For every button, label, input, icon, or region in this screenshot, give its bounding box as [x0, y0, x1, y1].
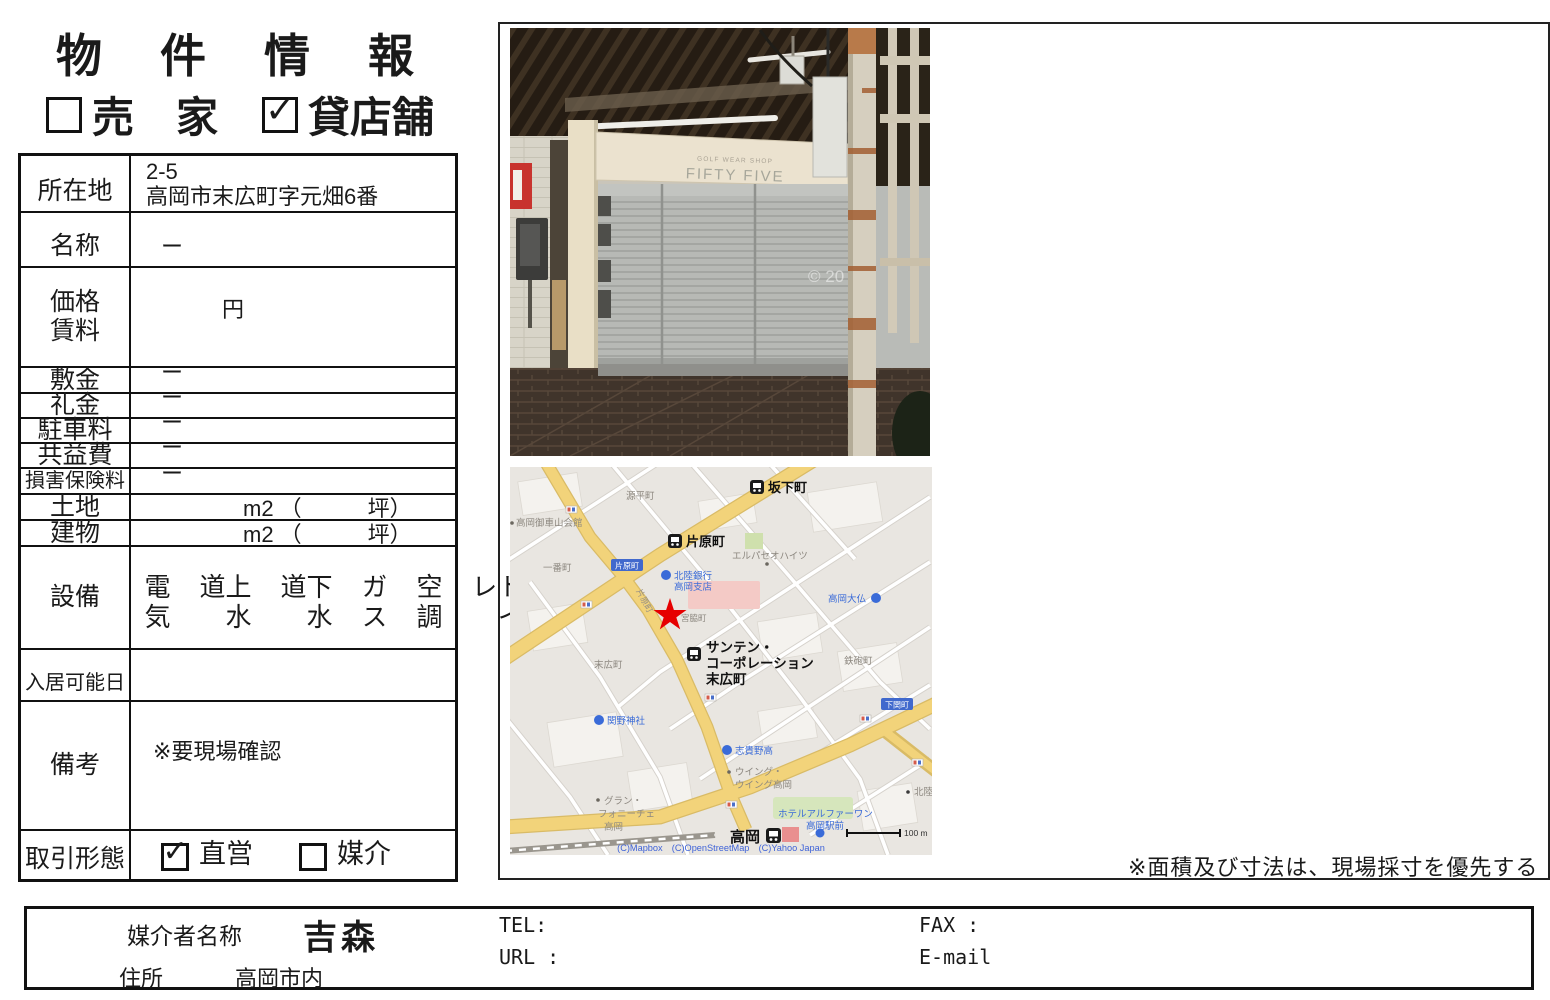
shutter-top-lip [598, 184, 848, 196]
label-santen-1: サンテン・ [706, 640, 774, 655]
table-row-facilities: 設備 電気 上水道 下水道 ガス 空調 トイレ [21, 545, 455, 648]
ladder-rail-2 [910, 28, 919, 343]
table-row-insurance: 損害保険料 ー [21, 467, 455, 493]
property-type-row: 売 家 ✓ 貸店舗 [46, 84, 434, 145]
label-sekino: 関野神社 [607, 715, 646, 727]
scale-label: 100 m [904, 828, 928, 838]
checkbox-rent[interactable]: ✓ [262, 97, 298, 133]
facility-item: ガス [360, 573, 386, 648]
media-panel: GOLF WEAR SHOP FIFTY FIVE [498, 22, 1550, 880]
table-row-keymoney: 礼金 ー [21, 392, 455, 417]
red-sign-panel [513, 170, 522, 200]
label-shikino: 志貴野高 [735, 745, 773, 757]
row-label: 土地 [21, 495, 131, 519]
price-label-1: 価格 [50, 288, 100, 316]
green-area-small [745, 533, 763, 549]
address-value: 高岡市内 [235, 961, 323, 993]
row-value: ー [131, 469, 455, 493]
bank-icon [661, 570, 671, 580]
location-line2: 高岡市末広町字元畑6番 [146, 184, 378, 209]
table-row-land: 土地 m2 （ 坪） [21, 493, 455, 519]
poi-dot-hokuriku [906, 790, 910, 794]
property-sheet: 物 件 情 報 売 家 ✓ 貸店舗 所在地 2-5 高岡市末広町字元畑6番 名称… [0, 0, 1550, 1000]
checkbox-sale[interactable] [46, 97, 82, 133]
label-hokuriku: 北陸 [914, 786, 932, 798]
label-gran-3: 高岡 [604, 821, 623, 833]
label-daibutsu: 高岡大仏 [828, 593, 867, 605]
label-hotel-1: ホテルアルファーワン [778, 809, 873, 820]
label-bank-2: 高岡支店 [674, 581, 712, 593]
takaoka-station-building [782, 827, 799, 842]
label-mikurumayama: 高岡御車山会館 [516, 517, 583, 529]
left-wall [510, 136, 568, 376]
row-value [131, 650, 455, 700]
row-label: 価格 賃料 [21, 268, 131, 366]
label-bank-1: 北陸銀行 [674, 570, 713, 582]
row-value: m2 （ 坪） [131, 521, 455, 545]
poi-dot-wing [727, 770, 731, 774]
utility-box-door [520, 224, 540, 266]
row-value: ー [131, 213, 455, 266]
agent-name-label: 媒介者名称 [127, 917, 242, 951]
label-santen-3: 末広町 [706, 671, 747, 687]
row-label: 敷金 [21, 368, 131, 392]
table-row-deposit: 敷金 ー [21, 366, 455, 392]
agent-footer: 媒介者名称 吉森 TEL: URL : FAX : E-mail 住所 高岡市内 [24, 906, 1534, 990]
crossbar-2 [880, 114, 930, 123]
facility-item: 下水道 [279, 573, 331, 648]
label-suehiromachi: 末広町 [594, 659, 623, 671]
label-wing-1: ウイング・ [735, 766, 783, 778]
label-wing-2: ウイング高岡 [735, 779, 792, 791]
poi-dot-hall [510, 521, 514, 525]
url-label: URL : [499, 945, 559, 969]
rusty-pole [848, 28, 876, 456]
checkbox-direct[interactable]: ✓ [161, 843, 189, 871]
checkbox-agency[interactable] [299, 843, 327, 871]
measurement-note: ※面積及び寸法は、現場採寸を優先する [1128, 850, 1538, 882]
map-attribution: (C)Mapbox (C)OpenStreetMap (C)Yahoo Japa… [617, 843, 825, 853]
row-value: 2-5 高岡市末広町字元畑6番 [131, 156, 455, 211]
label-sakashitamachi: 坂下町 [768, 480, 807, 495]
threshold [598, 364, 848, 376]
row-label: 設備 [21, 547, 131, 648]
label-miyawakicho: 宮脇町 [681, 613, 707, 623]
fax-label: FAX : [919, 913, 979, 937]
daibutsu-icon [871, 593, 881, 603]
label-ichibancho: 一番町 [543, 562, 572, 574]
ladder-rail-1 [888, 28, 897, 333]
shrine-icon [594, 715, 604, 725]
location-line1: 2-5 [146, 159, 178, 184]
rent-label: 貸店舗 [308, 84, 434, 145]
sale-label: 売 家 [92, 84, 218, 145]
storefront-photo: GOLF WEAR SHOP FIFTY FIVE [510, 28, 930, 456]
table-row-movein: 入居可能日 [21, 648, 455, 700]
label-genpeimachi: 源平町 [626, 491, 655, 502]
label-kataharamachi: 片原町 [686, 534, 725, 549]
tel-label: TEL: [499, 913, 547, 937]
facility-item: 上水道 [198, 573, 250, 648]
electrical-box [813, 77, 847, 177]
crossbar-3 [880, 258, 930, 266]
facilities-list: 電気 上水道 下水道 ガス 空調 トイレ [131, 547, 522, 648]
row-label: 共益費 [21, 444, 131, 467]
label-elpaseo: エルパセオハイツ [732, 551, 808, 562]
table-row-location: 所在地 2-5 高岡市末広町字元畑6番 [21, 156, 455, 211]
table-row-price: 価格 賃料 円 [21, 266, 455, 366]
photo-watermark: © 20 [808, 267, 844, 286]
row-label: 損害保険料 [21, 469, 131, 493]
label-santen-2: コーポレーション [706, 655, 814, 671]
table-row-parking: 駐車料 ー [21, 417, 455, 442]
table-row-commonfee: 共益費 ー [21, 442, 455, 467]
label-teppomachi: 鉄砲町 [844, 655, 873, 667]
road-badge-shimozeki: 下関町 [881, 698, 913, 710]
facility-item: 電気 [143, 573, 169, 648]
row-label: 礼金 [21, 394, 131, 417]
poi-dot-gran [596, 798, 600, 802]
row-value: ※要現場確認 [131, 702, 455, 829]
row-label: 駐車料 [21, 419, 131, 442]
row-label: 備考 [21, 702, 131, 829]
check-icon: ✓ [265, 92, 295, 128]
svg-text:下関町: 下関町 [885, 701, 909, 710]
school-icon [722, 745, 732, 755]
facility-item: 空調 [415, 573, 441, 648]
table-row-remarks: 備考 ※要現場確認 [21, 700, 455, 829]
table-row-transaction: 取引形態 ✓ 直営 媒介 [21, 829, 455, 879]
label-gran-1: グラン・ [604, 795, 642, 807]
table-row-name: 名称 ー [21, 211, 455, 266]
property-table: 所在地 2-5 高岡市末広町字元畑6番 名称 ー 価格 賃料 円 敷金 ー 礼金… [18, 153, 458, 882]
row-value: 円 [131, 268, 455, 366]
road-badge-katahara: 片原町 [611, 559, 643, 571]
transaction-options: ✓ 直営 媒介 [131, 831, 455, 879]
row-label: 所在地 [21, 156, 131, 211]
label-gran-2: フォニーチェ [598, 809, 655, 820]
table-row-building: 建物 m2 （ 坪） [21, 519, 455, 545]
row-label: 建物 [21, 521, 131, 545]
email-label: E-mail [919, 945, 991, 969]
label-hotel-2: 高岡駅前 [806, 820, 844, 832]
row-label: 名称 [21, 213, 131, 266]
check-icon: ✓ [162, 837, 187, 868]
agency-label: 媒介 [337, 832, 391, 871]
address-label: 住所 [119, 961, 163, 993]
sign-main-text: FIFTY FIVE [685, 165, 784, 185]
poi-dot-elpaseo [765, 562, 769, 566]
dark-background [868, 28, 930, 186]
svg-text:片原町: 片原町 [615, 561, 639, 571]
page-title: 物 件 情 報 [56, 20, 420, 86]
cardboard [552, 280, 566, 350]
row-value: m2 （ 坪） [131, 495, 455, 519]
direct-label: 直営 [199, 832, 253, 871]
row-label: 取引形態 [21, 831, 131, 879]
far-wall [868, 186, 930, 376]
agent-name-value: 吉森 [303, 910, 379, 959]
row-label: 入居可能日 [21, 650, 131, 700]
location-map: 片原町 下関町 片原町 [510, 467, 932, 855]
price-label-2: 賃料 [50, 317, 100, 345]
crossbar-1 [880, 56, 930, 65]
